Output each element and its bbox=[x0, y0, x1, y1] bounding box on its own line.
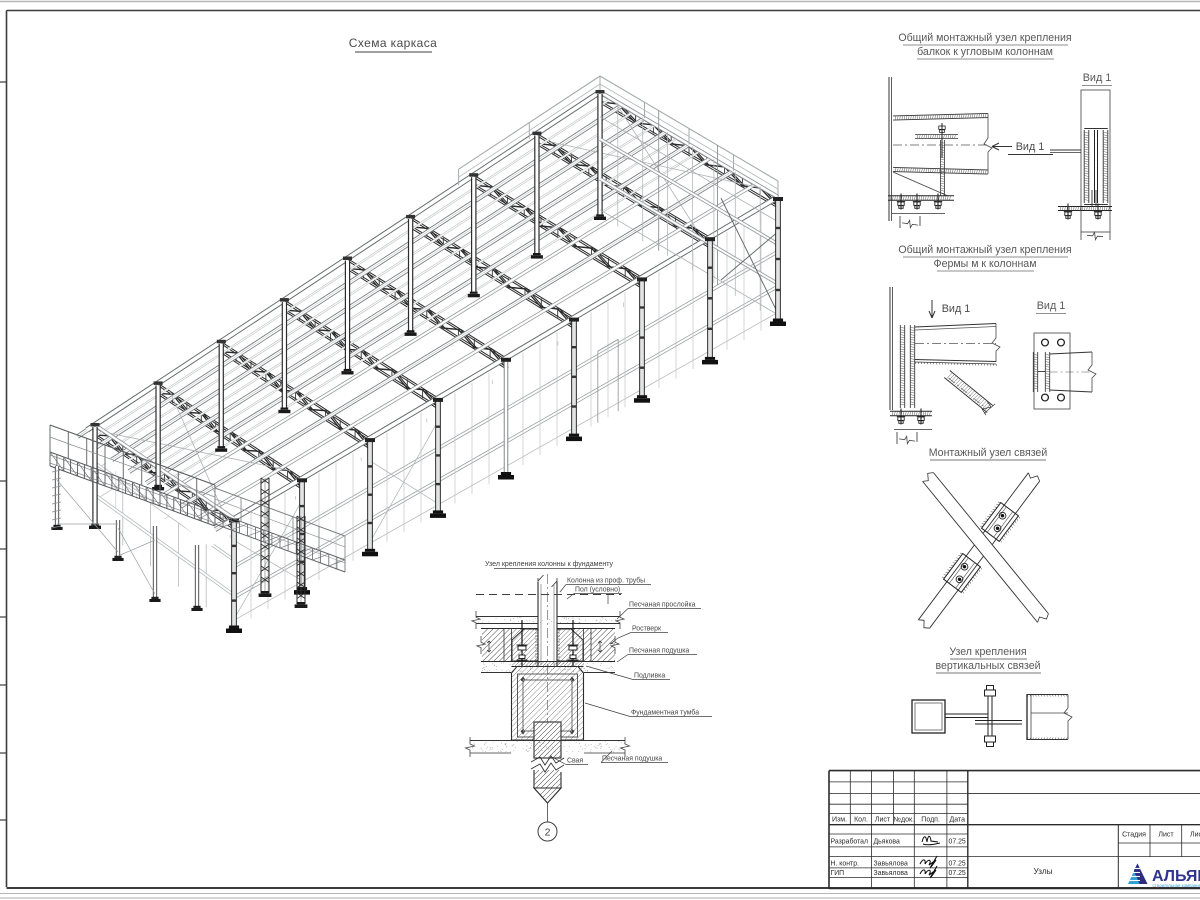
svg-text:Узел крепления колонны к фунда: Узел крепления колонны к фундаменту bbox=[485, 561, 614, 568]
svg-text:Дьякова: Дьякова bbox=[874, 839, 900, 846]
svg-text:Лист: Лист bbox=[875, 816, 891, 823]
svg-text:Фермы м к колоннам: Фермы м к колоннам bbox=[934, 258, 1037, 270]
svg-text:строительная компания: строительная компания bbox=[1153, 883, 1200, 888]
svg-text:вертикальных связей: вертикальных связей bbox=[935, 660, 1040, 672]
svg-text:Колонна из проф. трубы: Колонна из проф. трубы bbox=[567, 577, 645, 585]
svg-text:Песчаная подушка: Песчаная подушка bbox=[602, 756, 662, 763]
svg-text:Вид 1: Вид 1 bbox=[1016, 141, 1045, 153]
svg-text:Вид 1: Вид 1 bbox=[1083, 72, 1112, 84]
svg-text:Изм.: Изм. bbox=[832, 816, 847, 823]
svg-text:07.25: 07.25 bbox=[949, 860, 966, 867]
svg-text:ГИП: ГИП bbox=[831, 870, 845, 877]
svg-text:Разработал: Разработал bbox=[831, 838, 869, 846]
svg-text:Схема каркаса: Схема каркаса bbox=[349, 36, 437, 50]
svg-text:Лист: Лист bbox=[1158, 832, 1174, 839]
svg-text:Вид 1: Вид 1 bbox=[1037, 300, 1066, 312]
svg-text:Общий монтажный узел крепления: Общий монтажный узел крепления bbox=[898, 32, 1071, 44]
svg-text:Н. контр.: Н. контр. bbox=[831, 860, 860, 867]
svg-text:Узел крепления: Узел крепления bbox=[949, 646, 1026, 658]
svg-text:Вид 1: Вид 1 bbox=[942, 303, 971, 315]
svg-text:Ростверк: Ростверк bbox=[632, 626, 662, 633]
svg-text:балкок к угловым колоннам: балкок к угловым колоннам bbox=[917, 46, 1053, 58]
svg-text:Пол (условно): Пол (условно) bbox=[575, 587, 620, 594]
svg-text:07.25: 07.25 bbox=[949, 839, 966, 846]
svg-text:07.25: 07.25 bbox=[949, 870, 966, 877]
svg-text:Стадия: Стадия bbox=[1122, 832, 1146, 839]
svg-text:2: 2 bbox=[545, 827, 551, 839]
svg-text:Кол.: Кол. bbox=[854, 816, 868, 823]
svg-text:№док.: №док. bbox=[894, 816, 915, 823]
svg-text:Монтажный узел связей: Монтажный узел связей bbox=[929, 447, 1048, 459]
svg-text:Лис: Лис bbox=[1190, 832, 1200, 839]
svg-text:Завьялова: Завьялова bbox=[874, 860, 908, 867]
svg-text:Свая: Свая bbox=[567, 758, 583, 765]
svg-text:Дата: Дата bbox=[950, 816, 966, 823]
svg-text:Песчаная прослойка: Песчаная прослойка bbox=[629, 601, 696, 609]
svg-text:Завьялова: Завьялова bbox=[874, 870, 908, 877]
svg-text:Узлы: Узлы bbox=[1033, 867, 1052, 876]
svg-text:Подливка: Подливка bbox=[634, 673, 665, 680]
svg-text:Песчаная подушка: Песчаная подушка bbox=[629, 648, 689, 655]
svg-text:Фундаментная тумба: Фундаментная тумба bbox=[631, 709, 699, 717]
svg-text:Подп.: Подп. bbox=[921, 816, 940, 823]
svg-text:Общий монтажный узел крепления: Общий монтажный узел крепления bbox=[898, 244, 1071, 256]
